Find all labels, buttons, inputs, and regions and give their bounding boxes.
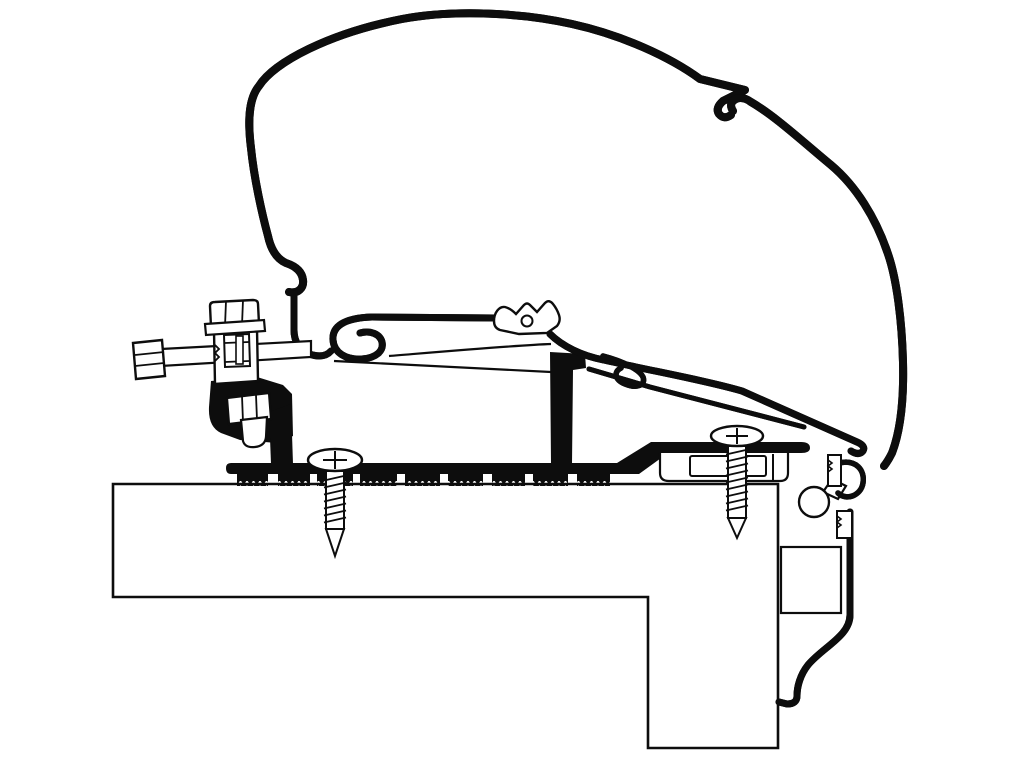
clamp-nut-group (227, 393, 271, 447)
adapter-rear-foot (660, 453, 788, 481)
bracket-lower-edge (334, 361, 551, 372)
wall-cavity-box (781, 547, 841, 613)
adapter-cross-section-diagram: Awning roof-mount adapter — technical cr… (0, 0, 1024, 768)
bracket-screw-channel (522, 316, 533, 327)
horizontal-bolt-head (133, 340, 165, 379)
clamp-support-column (269, 404, 293, 464)
roof-section-outline (113, 484, 778, 748)
clamp-slot-insert (236, 336, 243, 364)
clamp-bolt-end (241, 417, 267, 447)
adapter-post (550, 352, 586, 464)
adapter-rail-foot-pads (237, 473, 610, 486)
rail-bulb (799, 487, 829, 517)
screw-tip (326, 529, 344, 556)
diagram-canvas: Awning roof-mount adapter — technical cr… (0, 0, 1024, 768)
bracket-support-arm (550, 334, 864, 454)
clamp-assembly (133, 300, 311, 464)
roof-cross-section (113, 484, 778, 748)
vertical-bolt (205, 300, 265, 335)
roof-screw-front (308, 449, 362, 556)
screw-tip (728, 518, 746, 538)
bracket-profile (333, 301, 864, 453)
wall-awning-rail (799, 455, 863, 538)
awning-cassette (249, 13, 903, 466)
bracket-bottom-chord (389, 344, 551, 356)
cassette-shell-front (249, 13, 745, 292)
